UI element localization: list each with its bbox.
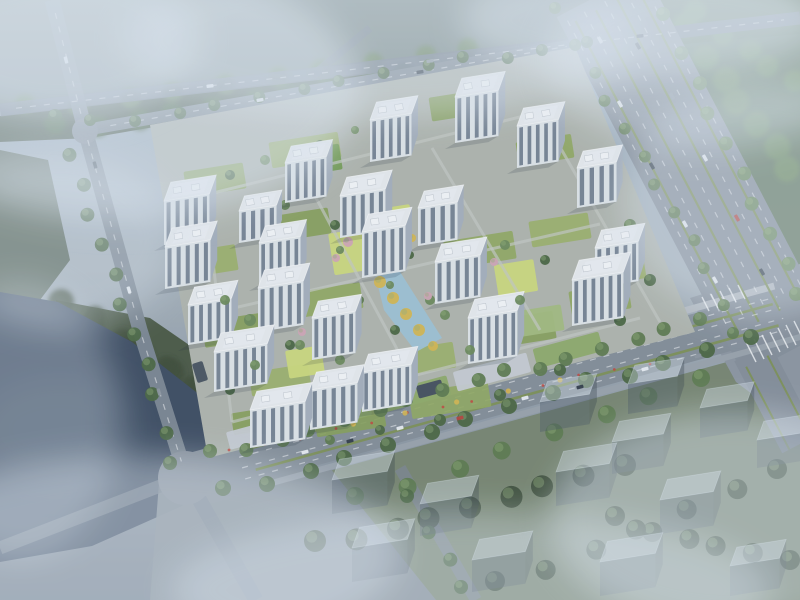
window-strip [536,124,540,163]
roof-unit [283,392,292,399]
tree [424,292,432,300]
tree-canopy-highlight [401,309,407,315]
roof-unit [388,215,397,222]
window-strip [262,409,266,444]
window-strip [553,122,557,161]
tree [559,352,573,366]
tree-canopy-highlight [745,330,753,338]
roof-unit [603,262,612,269]
tree-canopy-highlight [503,488,514,499]
tree-canopy-highlight [491,259,495,263]
window-strip [391,229,395,272]
tree [400,308,412,320]
tree [336,246,344,254]
window-strip [341,315,345,354]
tree [332,254,340,262]
tree-canopy-highlight [645,275,651,281]
window-strip [322,389,326,426]
window-strip [251,210,255,239]
roof-unit [603,234,612,241]
tree-canopy-highlight [401,490,408,497]
roof-unit [283,227,292,234]
window-strip [456,260,460,299]
window-strip [382,230,386,273]
roof-unit [196,291,205,298]
tree-canopy-highlight [387,282,391,286]
tree [400,489,414,503]
window-strip [234,350,238,387]
window-strip [341,386,345,423]
tree [595,342,609,356]
tree [390,325,400,335]
tree [533,362,547,376]
window-strip [465,259,469,298]
tree-canopy-highlight [694,370,703,379]
tree-canopy-highlight [516,296,521,301]
tree [351,126,359,134]
tree [743,329,759,345]
planned-building-ghost [540,374,597,432]
roof-unit [246,334,255,341]
tree [497,363,511,377]
tree-canopy-highlight [535,363,542,370]
window-strip [186,245,190,284]
tree [330,220,340,230]
window-strip [372,121,376,160]
window-strip [313,391,317,428]
tree-canopy-highlight [400,479,409,488]
window-strip [617,274,621,317]
tree-canopy-highlight [376,426,381,431]
tree-canopy-highlight [161,427,168,434]
tree [413,324,425,336]
window-strip [195,244,199,283]
tree [160,426,174,440]
window-strip [592,278,596,321]
retail-accent [542,384,545,387]
tree [693,312,707,326]
roof-unit [319,376,328,383]
window-strip [190,306,194,343]
tree-canopy-highlight [296,341,301,346]
tree [472,373,486,387]
window-strip [609,276,613,319]
tree [540,255,550,265]
tree [387,292,399,304]
window-strip [405,367,409,404]
roof-unit [261,395,270,402]
roof-unit [367,179,376,186]
tree-canopy-highlight [501,241,506,246]
tree-canopy-highlight [503,399,511,407]
tree-canopy-highlight [555,365,561,371]
tree [515,295,525,305]
window-strip [438,263,442,302]
tree [435,383,449,397]
tree-canopy-highlight [441,311,446,316]
tree [127,327,141,341]
retail-accent [442,406,445,409]
window-strip [204,242,208,281]
tree [142,357,156,371]
roof-unit [370,218,379,225]
roof-unit [338,302,347,309]
tree [598,405,616,423]
window-strip [216,353,220,390]
window-strip [349,314,353,353]
window-strip [487,316,491,359]
window-strip [288,285,292,326]
window-strip [381,370,385,407]
tree [554,364,566,376]
tree-canopy-highlight [204,445,211,452]
tree [203,444,217,458]
window-strip [299,404,303,439]
window-strip [495,315,499,358]
window-strip [397,368,401,405]
tree [631,332,645,346]
roof-unit [372,358,381,365]
window-strip [397,117,401,156]
tree-canopy-highlight [326,436,331,441]
window-strip [243,349,247,386]
tree-canopy-highlight [338,451,346,459]
window-strip [399,228,403,271]
window-strip [528,126,532,165]
window-strip [199,305,203,342]
tree [465,345,475,355]
tree-canopy-highlight [498,364,505,371]
tree [494,389,506,401]
roof-unit [214,288,223,295]
tree-canopy-highlight [391,326,396,331]
tree-canopy-highlight [382,438,390,446]
tree-canopy-highlight [425,293,429,297]
gold-shrub [454,399,459,404]
tree [375,425,385,435]
roof-unit [582,265,591,272]
window-strip [332,388,336,425]
front-facade [468,310,517,364]
tree [424,424,440,440]
tree-canopy-highlight [429,342,434,347]
window-strip [590,167,594,204]
tree [727,327,739,339]
tree-canopy-highlight [624,369,632,377]
window-strip [503,314,507,357]
window-strip [242,212,246,241]
window-strip [289,405,293,440]
roof-unit [441,192,450,199]
roof-unit [600,152,609,159]
window-strip [574,281,578,324]
roof-unit [225,337,234,344]
tree-canopy-highlight [633,333,640,340]
window-strip [474,257,478,296]
tree-canopy-highlight [694,313,701,320]
window-strip [217,302,221,339]
roof-unit [267,274,276,281]
tree-canopy-highlight [331,221,336,226]
retail-accent [228,449,231,452]
window-strip [280,407,284,442]
window-strip [373,372,377,409]
tree-canopy-highlight [221,296,226,301]
tree [285,340,295,350]
tree-canopy-highlight [146,388,153,395]
tree-canopy-highlight [305,464,313,472]
roof-unit [261,196,270,203]
roof-unit [525,112,534,119]
gold-shrub [402,410,407,415]
window-strip [450,204,454,239]
roof-unit [498,300,507,307]
tree-canopy-highlight [728,328,734,334]
tree-canopy-highlight [560,353,567,360]
window-strip [580,169,584,206]
window-strip [314,319,318,358]
window-strip [364,373,368,410]
window-strip [253,411,257,446]
tree-canopy-highlight [658,323,665,330]
tree-canopy-highlight [495,390,501,396]
roof-unit [391,355,400,362]
window-strip [270,288,274,329]
window-strip [431,207,435,242]
window-strip [261,346,265,383]
roof-unit [192,230,201,237]
window-strip [389,369,393,406]
roof-unit [338,373,347,380]
roof-unit [584,155,593,162]
window-strip [600,166,604,203]
window-strip [600,277,604,320]
tree [325,435,335,445]
window-strip [343,197,347,236]
tree [434,414,446,426]
window-strip [279,286,283,327]
window-strip [323,318,327,357]
retail-accent [613,368,616,371]
window-strip [544,123,548,162]
tree [303,463,319,479]
roof-unit [349,181,358,188]
retail-accent [370,422,373,425]
tree [428,341,438,351]
roof-unit [267,230,276,237]
tree-canopy-highlight [245,315,251,321]
tree-canopy-highlight [299,329,303,333]
roof-unit [444,248,453,255]
window-strip [208,303,212,340]
aerial-render-image [0,0,800,600]
tree-canopy-highlight [533,477,544,488]
window-strip [479,318,483,361]
tree [298,328,306,336]
roof-unit [462,245,471,252]
tree [250,360,260,370]
tree [500,240,510,250]
window-strip [352,196,356,235]
tree [440,310,450,320]
tree [531,475,553,497]
window-strip [321,159,325,196]
front-facade [362,364,411,412]
tree-canopy-highlight [453,461,462,470]
tree-canopy-highlight [414,325,420,331]
tree-canopy-highlight [596,343,603,350]
tree-canopy-highlight [495,443,504,452]
window-strip [609,164,613,201]
tree-canopy-highlight [143,358,150,365]
tree-canopy-highlight [701,343,709,351]
window-strip [421,209,425,244]
window-strip [470,319,474,362]
tree [386,281,394,289]
window-strip [511,313,515,356]
front-facade [572,272,623,326]
tree-canopy-highlight [435,415,441,421]
gold-shrub [506,388,511,393]
roof-unit [542,109,551,116]
window-strip [271,408,275,443]
window-strip [351,385,355,422]
scene-svg [0,0,800,600]
roof-unit [478,303,487,310]
tree-canopy-highlight [473,374,480,381]
window-strip [381,120,385,159]
tree-canopy-highlight [251,361,256,366]
tree-canopy-highlight [388,293,394,299]
roof-unit [285,271,294,278]
roof-unit [425,195,434,202]
tree-canopy-highlight [466,346,471,351]
tree [501,398,517,414]
tree-canopy-highlight [426,425,434,433]
tree-canopy-highlight [337,247,341,251]
tree [451,460,469,478]
window-strip [332,316,336,355]
window-strip [583,280,587,323]
window-strip [373,232,377,275]
tree [692,369,710,387]
tree [490,258,498,266]
tree [220,295,230,305]
tree [501,486,523,508]
window-strip [261,289,265,330]
roof-unit [320,304,329,311]
tree-canopy-highlight [333,255,337,259]
tree-canopy-highlight [286,341,291,346]
tree-canopy-highlight [129,328,136,335]
window-strip [406,116,410,155]
planned-building-ghost [628,357,684,414]
tree-canopy-highlight [352,127,356,131]
tree-canopy-highlight [541,256,546,261]
tree-canopy-highlight [437,384,444,391]
retail-accent [470,400,473,403]
window-strip [447,262,451,301]
window-strip [297,283,301,324]
window-strip [519,127,523,166]
window-strip [441,206,445,241]
tree [493,442,511,460]
tree [295,340,305,350]
window-strip [225,352,229,389]
tree-canopy-highlight [600,407,609,416]
tree [657,322,671,336]
window-strip [364,233,368,276]
window-strip [389,118,393,157]
tree [244,314,256,326]
